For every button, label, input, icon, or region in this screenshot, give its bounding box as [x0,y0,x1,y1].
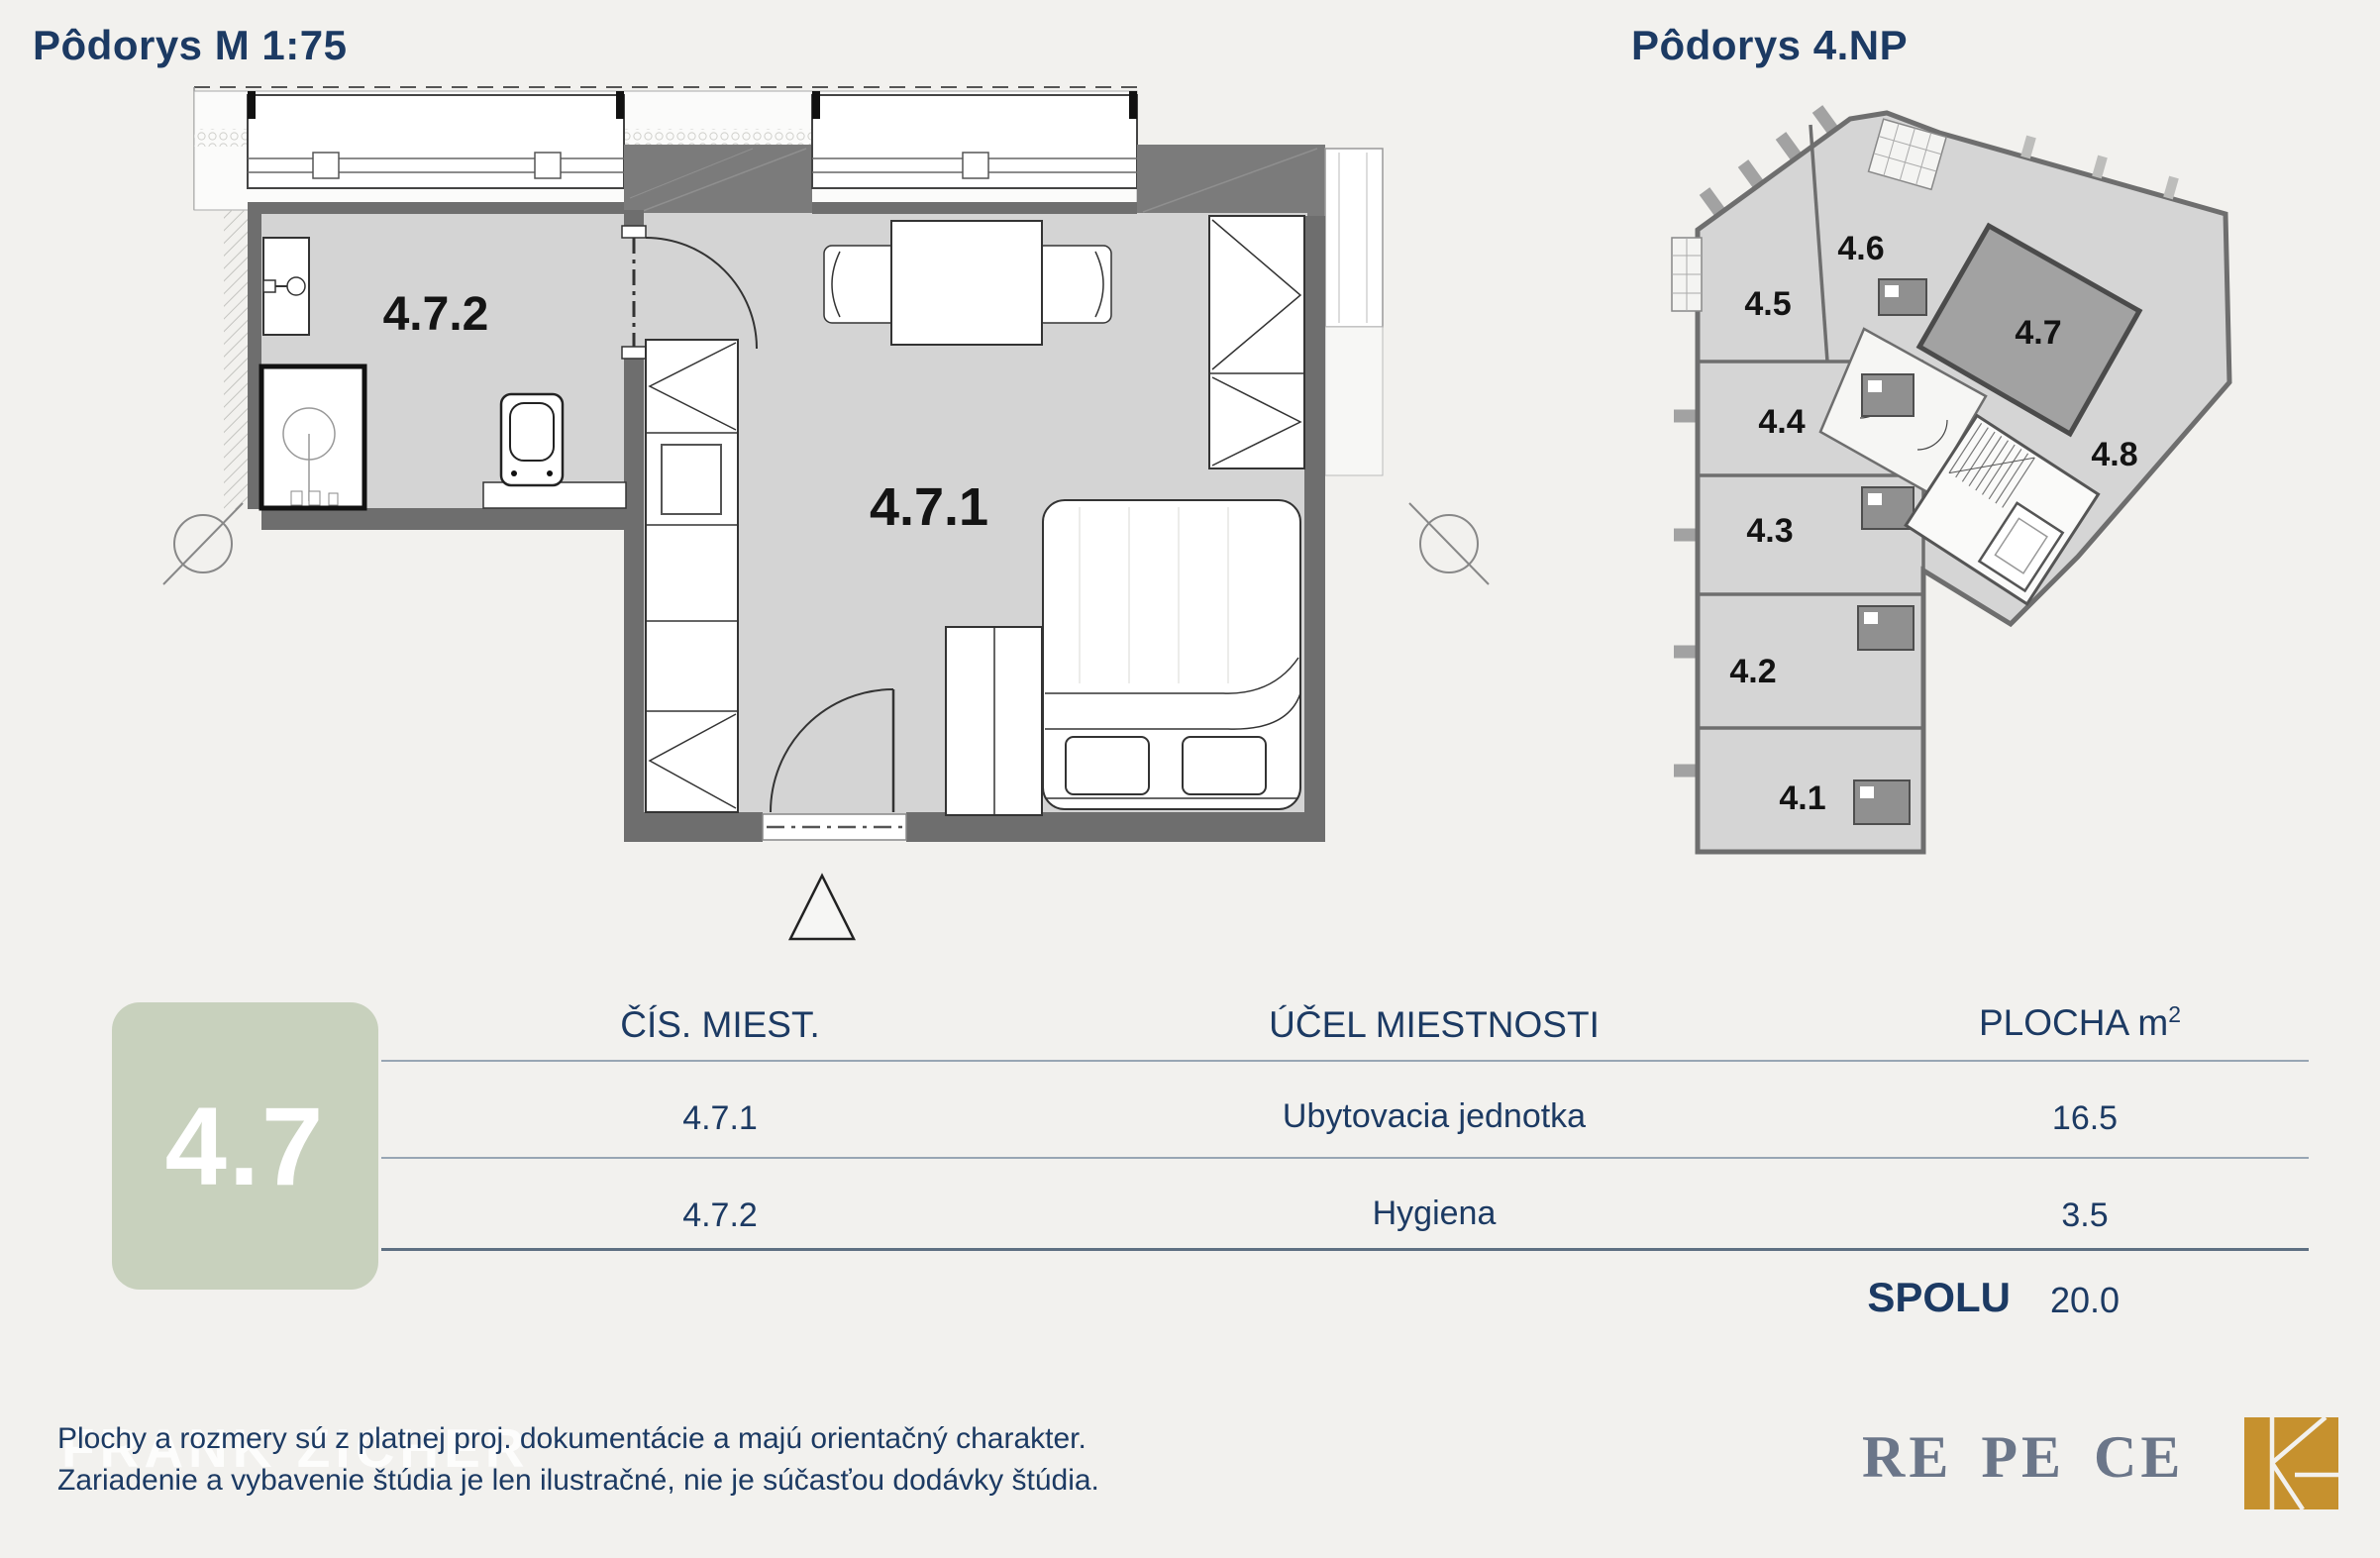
row2-purpose: Hygiena [1373,1194,1497,1233]
row2-room-number: 4.7.2 [682,1196,758,1235]
unit-label-4-4: 4.4 [1758,403,1805,441]
bed [1043,500,1300,809]
unit-label-4-5: 4.5 [1744,285,1791,323]
page-title-left: Pôdorys M 1:75 [33,22,347,69]
col-header-area-sup: 2 [2168,1001,2181,1027]
row2-area: 3.5 [2061,1196,2108,1235]
unit-label-4-8: 4.8 [2091,436,2137,473]
window-strip-left [248,91,624,188]
col-header-area: PLOCHA m2 [1979,1002,2181,1044]
col-header-purpose: ÚČEL MIESTNOSTI [1269,1004,1600,1046]
unit-label-4-6: 4.6 [1837,230,1884,267]
room-label-bath: 4.7.2 [383,288,489,341]
closet-column [646,340,738,812]
section-symbol-right [1409,503,1489,584]
unit-label-4-2: 4.2 [1729,653,1776,690]
section-symbol-left [163,503,243,584]
overview-floor-plan: 4.1 4.2 4.3 4.4 4.5 4.6 4.7 4.8 [1644,89,2258,872]
col-header-area-text: PLOCHA m [1979,1002,2168,1043]
row1-area: 16.5 [2052,1099,2118,1138]
page-title-right: Pôdorys 4.NP [1631,22,1908,69]
table-total-divider [381,1248,2309,1251]
unit-badge: 4.7 [112,1002,378,1290]
sink-vanity [263,238,309,335]
total-label: SPOLU [1867,1274,2011,1321]
window-strip-right [812,91,1137,188]
brand-wordmark: RE PE CE [1862,1423,2184,1492]
cabinet [946,627,1042,815]
disclaimer-line-2: Zariadenie a vybavenie štúdia je len ilu… [57,1464,1099,1498]
col-header-room-number: ČÍS. MIEST. [620,1004,819,1046]
shower [261,366,364,508]
row1-room-number: 4.7.1 [682,1099,758,1138]
wall-corner-pier [1137,145,1325,216]
unit-label-4-3: 4.3 [1746,512,1793,550]
detail-floor-plan: 4.7.2 4.7.1 [158,79,1496,951]
row1-purpose: Ubytovacia jednotka [1283,1097,1586,1136]
unit-badge-label: 4.7 [165,1083,326,1210]
side-window-strip [1325,149,1383,475]
floorplan-page: Pôdorys M 1:75 Pôdorys 4.NP [0,0,2380,1558]
brand-logo-icon [2244,1417,2338,1509]
total-value: 20.0 [2050,1280,2120,1321]
wardrobe [1209,216,1304,468]
table-divider [381,1060,2309,1062]
unit-label-4-7: 4.7 [2015,314,2061,352]
room-label-main: 4.7.1 [870,477,988,537]
wall-pier [624,145,812,220]
unit-label-4-1: 4.1 [1779,779,1825,817]
grid-balcony-left [1672,238,1702,311]
table-divider [381,1157,2309,1159]
disclaimer-line-1: Plochy a rozmery sú z platnej proj. doku… [57,1422,1087,1456]
entry-arrow-triangle [790,876,854,939]
